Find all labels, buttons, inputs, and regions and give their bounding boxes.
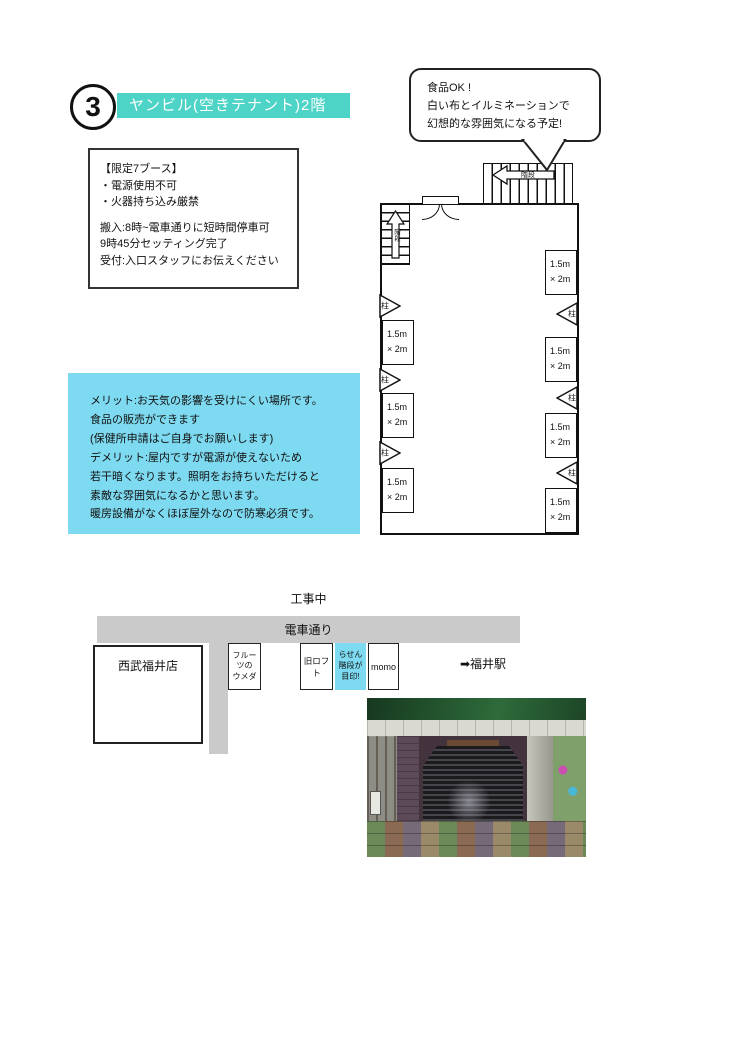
construction-label: 工事中 — [97, 590, 520, 607]
info-box: 【限定7ブース】 ・電源使用不可 ・火器持ち込み厳禁 搬入:8時~電車通りに短時… — [88, 148, 299, 289]
pillar-marker: 柱 — [556, 302, 578, 326]
section-number-badge: 3 — [70, 84, 116, 130]
landmark-spiral-stairs: らせん 階段が 目印! — [335, 643, 366, 690]
booth: 1.5m× 2m — [382, 320, 414, 365]
photo-spiral-staircase — [447, 780, 491, 824]
merit-line: 若干暗くなります。照明をお持ちいただけると — [90, 468, 360, 487]
tram-street: 電車通り — [97, 616, 520, 643]
venue-photo — [367, 698, 586, 857]
speech-bubble-line: 幻想的な雰囲気になる予定! — [427, 115, 599, 133]
page-title: ヤンビル(空きテナント)2階 — [117, 93, 350, 118]
side-street — [209, 643, 228, 754]
speech-bubble-line: 食品OK ! — [427, 79, 599, 97]
info-line: ・火器持ち込み厳禁 — [100, 194, 287, 211]
info-line: 受付:入口スタッフにお伝えください — [100, 253, 287, 270]
booth: 1.5m× 2m — [545, 488, 577, 533]
merit-line: デメリット:屋内ですが電源が使えないため — [90, 449, 360, 468]
info-line: 搬入:8時~電車通りに短時間停車可 — [100, 220, 287, 237]
merit-line: 素敵な雰囲気になるかと思います。 — [90, 487, 360, 506]
booth: 1.5m× 2m — [382, 393, 414, 438]
stairs-label: 階段 — [391, 228, 401, 241]
info-line: 【限定7ブース】 — [100, 161, 287, 178]
photo-shutter — [423, 746, 523, 821]
photo-right-pillar — [527, 736, 553, 821]
merit-line: 食品の販売ができます — [90, 411, 360, 430]
fukui-station-label: ➡福井駅 — [460, 655, 506, 672]
pillar-marker: 柱 — [379, 441, 401, 465]
merit-demerit-box: メリット:お天気の影響を受けにくい場所です。 食品の販売ができます (保健所申請… — [68, 373, 360, 534]
merit-line: メリット:お天気の影響を受けにくい場所です。 — [90, 392, 360, 411]
building-fruits-umeda: フルーツの ウメダ — [228, 643, 261, 690]
pillar-marker: 柱 — [556, 386, 578, 410]
merit-line: 暖房設備がなくほぼ屋外なので防寒必須です。 — [90, 505, 360, 524]
photo-pavement — [367, 821, 586, 857]
stairs-left: 階段 — [382, 205, 410, 265]
photo-left-pillar — [397, 736, 419, 821]
speech-bubble-tail — [505, 139, 585, 175]
building-kyu-loft: 旧ロフト — [300, 643, 333, 690]
photo-ceiling — [367, 720, 586, 737]
merit-line: (保健所申請はご自身でお願いします) — [90, 430, 360, 449]
building-seibu: 西武福井店 — [93, 645, 203, 744]
speech-bubble: 食品OK ! 白い布とイルミネーションで 幻想的な雰囲気になる予定! — [409, 68, 601, 142]
photo-entrance-frame — [419, 736, 527, 821]
pillar-marker: 柱 — [556, 461, 578, 485]
booth: 1.5m× 2m — [382, 468, 414, 513]
photo-signboard — [370, 791, 381, 815]
pillar-marker: 柱 — [379, 294, 401, 318]
speech-bubble-line: 白い布とイルミネーションで — [427, 97, 599, 115]
photo-green-canopy — [367, 698, 586, 720]
pillar-marker: 柱 — [379, 368, 401, 392]
info-line: ・電源使用不可 — [100, 178, 287, 195]
photo-right-window — [553, 736, 586, 821]
info-line: 9時45分セッティング完了 — [100, 236, 287, 253]
booth: 1.5m× 2m — [545, 250, 577, 295]
flyer-page: 3 ヤンビル(空きテナント)2階 食品OK ! 白い布とイルミネーションで 幻想… — [0, 0, 741, 1040]
booth: 1.5m× 2m — [545, 337, 577, 382]
building-momo: momo — [368, 643, 399, 690]
booth: 1.5m× 2m — [545, 413, 577, 458]
